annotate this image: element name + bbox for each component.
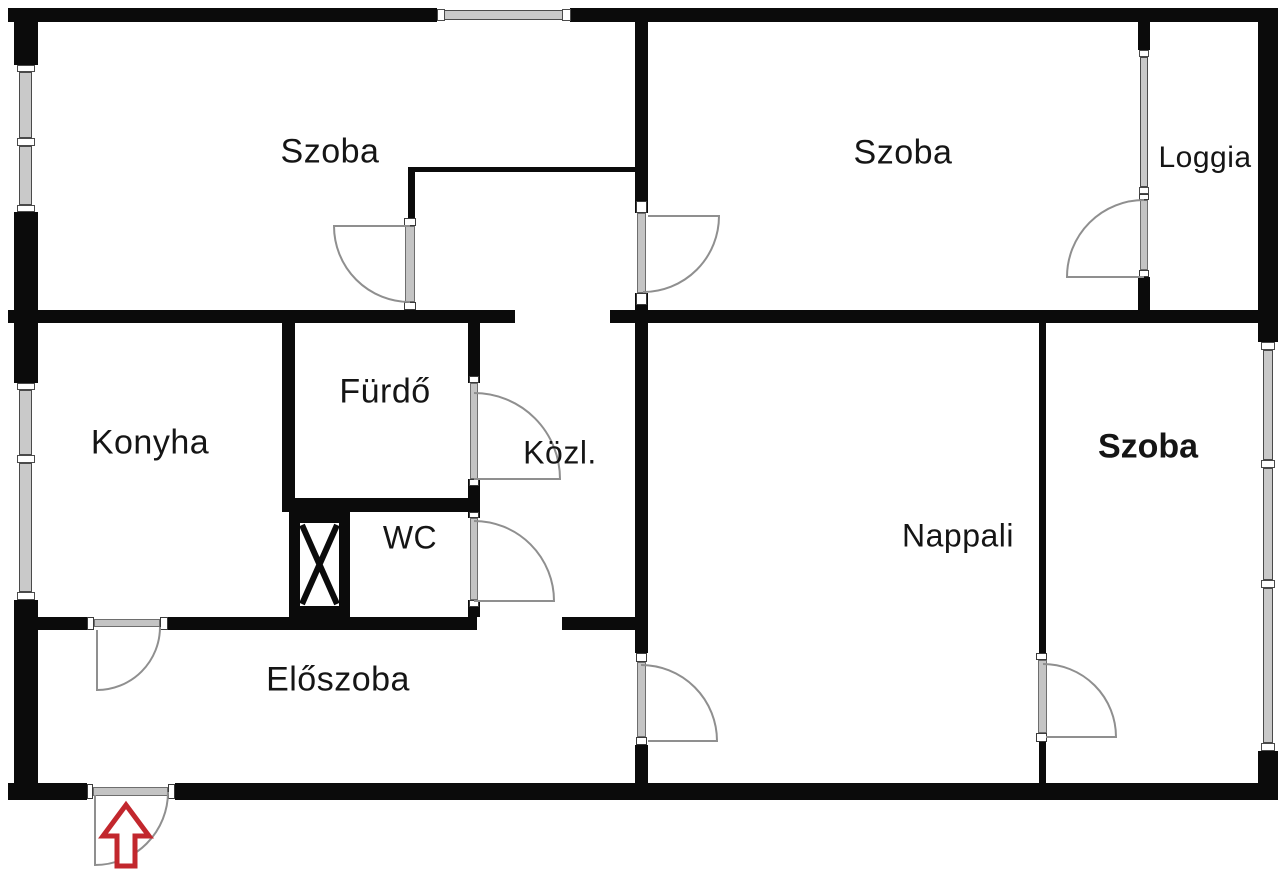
wall-segment — [282, 323, 295, 498]
wall-segment — [14, 600, 38, 800]
window-frame-cap — [1261, 342, 1275, 350]
room-label-szoba-top-left: Szoba — [281, 133, 380, 172]
wall-segment — [160, 617, 477, 630]
wall-segment — [635, 21, 648, 213]
room-label-kozl: Közl. — [523, 435, 597, 472]
window-glazing — [19, 146, 32, 205]
entrance-arrow-icon — [103, 805, 149, 866]
wall-segment — [1039, 323, 1046, 653]
door-jamb — [636, 201, 647, 213]
door-leaf-closed — [470, 518, 478, 600]
door-leaf-closed — [94, 619, 160, 627]
door-jamb — [1139, 270, 1149, 277]
window-frame-cap — [17, 138, 35, 146]
wall-segment — [1258, 751, 1278, 800]
window-frame-cap — [17, 205, 35, 212]
room-label-eloszoba: Előszoba — [266, 661, 410, 700]
door-swing-arc — [334, 226, 410, 302]
wall-segment — [635, 745, 648, 783]
door-leaf-closed — [470, 383, 478, 479]
wall-segment — [8, 783, 87, 800]
window-frame-cap — [1261, 743, 1275, 751]
wall-segment — [282, 498, 480, 512]
door-jamb — [160, 617, 168, 630]
room-label-furdo: Fürdő — [339, 373, 430, 412]
wall-segment — [38, 617, 94, 630]
room-label-szoba-top-right: Szoba — [854, 134, 953, 173]
window-frame-cap — [17, 592, 35, 600]
window-glazing — [1263, 588, 1273, 743]
window-glazing — [444, 10, 563, 20]
door-leaf-closed — [637, 662, 646, 737]
door-jamb — [404, 218, 416, 226]
door-leaf-closed — [637, 213, 646, 293]
window-frame-cap — [562, 9, 571, 21]
room-label-wc: WC — [383, 520, 437, 557]
wall-segment — [468, 323, 480, 383]
wall-segment — [14, 8, 38, 65]
window-frame-cap — [1139, 50, 1149, 57]
door-jamb — [636, 737, 647, 745]
window-glazing — [19, 72, 32, 138]
door-jamb — [404, 302, 416, 310]
door-jamb — [636, 653, 647, 662]
door-jamb — [469, 376, 479, 383]
window-glazing — [19, 463, 32, 592]
wall-segment — [8, 310, 515, 323]
window-glazing — [1263, 350, 1273, 460]
door-jamb — [1036, 653, 1047, 660]
room-label-konyha: Konyha — [91, 424, 209, 463]
door-swing-arc — [95, 792, 168, 865]
door-jamb — [469, 479, 479, 486]
wall-segment — [1138, 8, 1150, 50]
room-label-szoba-bottom-right: Szoba — [1098, 428, 1198, 467]
door-leaf-closed — [405, 226, 415, 302]
window-frame-cap — [437, 9, 445, 21]
window-frame-cap — [1261, 460, 1275, 468]
floor-plan: SzobaSzobaLoggiaKonyhaFürdőKözl.WCNappal… — [0, 0, 1280, 875]
wall-segment — [1039, 742, 1046, 783]
shaft-interior — [300, 523, 339, 606]
window-frame-cap — [17, 455, 35, 463]
wall-segment — [14, 212, 38, 383]
room-label-nappali: Nappali — [902, 518, 1014, 555]
wall-segment — [175, 783, 1278, 800]
door-leaf-closed — [1140, 200, 1148, 270]
wall-segment — [410, 167, 638, 172]
door-jamb — [1036, 733, 1047, 742]
window-frame-cap — [1261, 580, 1275, 588]
door-swing-arc — [97, 627, 160, 690]
wall-segment — [1258, 8, 1278, 342]
door-jamb — [636, 293, 647, 305]
wall-segment — [408, 167, 415, 218]
door-leaf-closed — [93, 787, 168, 796]
door-swing-arc — [1043, 664, 1116, 737]
window-frame-cap — [17, 65, 35, 72]
door-jamb — [469, 600, 479, 607]
window-frame-cap — [1139, 187, 1149, 194]
door-swing-arc — [474, 521, 554, 601]
window-frame-cap — [17, 383, 35, 390]
wall-segment — [635, 323, 648, 653]
door-leaf-closed — [1038, 660, 1047, 733]
window-glazing — [19, 390, 32, 455]
wall-segment — [570, 8, 1278, 22]
door-swing-arc — [1067, 200, 1144, 277]
door-jamb — [168, 784, 175, 799]
door-jamb — [87, 617, 94, 630]
door-swing-arc — [643, 216, 719, 292]
wall-segment — [1138, 277, 1150, 318]
wall-segment — [8, 8, 437, 22]
window-glazing — [1263, 468, 1273, 580]
wall-segment — [610, 310, 1278, 323]
window-glazing — [1140, 57, 1148, 187]
door-swing-arc — [641, 665, 717, 741]
room-label-loggia: Loggia — [1158, 141, 1251, 175]
wall-segment — [562, 617, 648, 630]
